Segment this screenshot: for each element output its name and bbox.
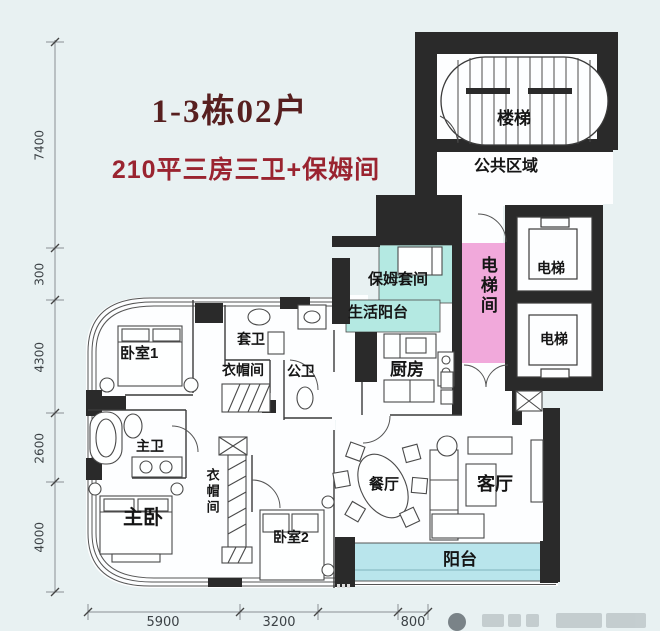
closet-icon: [222, 384, 270, 412]
room-label-bedroom1: 卧室1: [120, 346, 158, 362]
room-label-master-bath: 主卫: [136, 439, 164, 454]
room-label-balcony: 阳台: [443, 551, 477, 569]
room-label-dining: 餐厅: [369, 477, 399, 493]
tiny-plate-marks: [337, 584, 350, 588]
room-label-stairs: 楼梯: [497, 110, 531, 128]
page-subtitle: 210平三房三卫+保姆间: [96, 157, 396, 183]
dim-left-300: 300: [34, 254, 47, 294]
room-label-bedroom2: 卧室2: [273, 530, 309, 545]
room-label-cloakroom-master: 衣帽间: [205, 468, 219, 516]
shaft-x-icon: [516, 391, 542, 411]
room-label-guest-bath: 公卫: [287, 364, 315, 379]
bathtub-icon: [90, 412, 122, 464]
cabinet-icon: [441, 390, 453, 404]
coffee-table-icon: [468, 437, 512, 454]
dim-bottom-800: 800: [392, 616, 434, 630]
toilet-icon: [297, 387, 313, 409]
room-label-living: 客厅: [477, 475, 513, 494]
room-label-kitchen: 厨房: [390, 361, 424, 379]
dim-left-4300: 4300: [34, 337, 47, 377]
floorplan-page: 1-3栋02户 210平三房三卫+保姆间 楼梯 公共区域 电梯 电梯 电梯间 保…: [0, 0, 660, 631]
dim-left-7400: 7400: [34, 125, 47, 165]
side-table-icon: [437, 436, 457, 456]
room-label-elevator-hall: 电梯间: [478, 256, 496, 316]
stairs-icon: [440, 57, 608, 145]
dim-bottom-5900: 5900: [138, 616, 188, 630]
dim-left-4000: 4000: [34, 517, 47, 557]
tv-cabinet-icon: [531, 440, 543, 502]
room-label-nanny-suite: 保姆套间: [368, 272, 428, 288]
cabinet-icon: [441, 372, 453, 388]
room-label-master-bedroom: 主卧: [123, 508, 163, 529]
room-label-ensuite-bath: 套卫: [237, 332, 265, 347]
dim-bottom-3200: 3200: [254, 616, 304, 630]
room-label-elevator-bottom: 电梯: [540, 332, 568, 347]
room-label-elevator-top: 电梯: [537, 261, 565, 276]
room-label-cloakroom-top: 衣帽间: [222, 363, 264, 378]
watermark-logo: [448, 613, 646, 631]
room-label-service-balcony: 生活阳台: [348, 305, 408, 321]
page-title: 1-3栋02户: [128, 95, 332, 130]
room-label-public-area: 公共区域: [474, 159, 538, 176]
dim-left-2600: 2600: [34, 428, 47, 468]
